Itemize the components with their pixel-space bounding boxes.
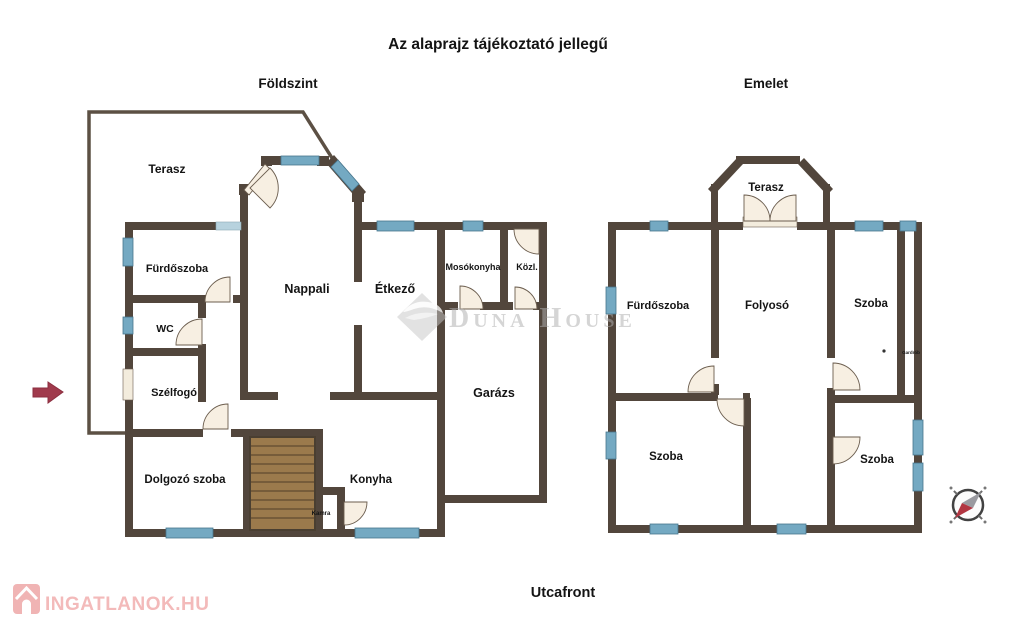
house-icon	[13, 584, 40, 614]
room-label-wc: WC	[156, 323, 174, 335]
window	[606, 432, 616, 459]
window	[355, 528, 419, 538]
room-label-furdoszoba: Fürdőszoba	[146, 263, 209, 275]
room-label-szoba-jobb-felso: Szoba	[854, 298, 888, 310]
door-arc	[203, 404, 228, 429]
ingatlanok-logo: INGATLANOK.HU	[6, 577, 216, 621]
upper-floor-plan	[606, 156, 923, 534]
room-label-kozlekedo: Közl.	[516, 262, 538, 272]
ground-floor-title: Földszint	[258, 76, 318, 91]
door-arc	[833, 437, 860, 464]
window	[331, 160, 359, 191]
door-arc	[176, 319, 202, 345]
door-arc	[744, 195, 770, 221]
street-front-label: Utcafront	[531, 585, 596, 601]
page-title: Az alaprajz tájékoztató jellegű	[388, 36, 608, 53]
window	[281, 156, 319, 165]
room-label-furdoszoba-emelet: Fürdőszoba	[627, 300, 690, 312]
ground-floor-room-labels: Terasz Fürdőszoba WC Szélfogó Nappali Ét…	[144, 162, 537, 517]
door-arc	[344, 502, 367, 525]
window	[216, 222, 241, 230]
window	[650, 524, 678, 534]
room-label-etkezo: Étkező	[375, 281, 416, 296]
door-arc	[770, 195, 796, 221]
window	[123, 238, 133, 266]
ingatlanok-watermark-text: INGATLANOK.HU	[45, 594, 209, 615]
door-arc	[514, 229, 539, 254]
room-label-terasz-emelet: Terasz	[748, 182, 784, 194]
duna-house-watermark-text: Duna House	[449, 303, 636, 334]
room-label-mosokonyha: Mosókonyha	[445, 262, 501, 272]
door-arc	[688, 366, 714, 392]
wardrobe-dot	[882, 349, 885, 352]
door-arc	[250, 168, 278, 208]
entrance-arrow-icon	[33, 382, 63, 403]
door-arc	[833, 363, 860, 390]
room-label-terasz: Terasz	[148, 162, 185, 176]
window	[650, 221, 668, 231]
window	[166, 528, 213, 538]
window	[855, 221, 883, 231]
upper-floor-windows	[606, 221, 923, 534]
window	[777, 524, 806, 534]
room-label-kamra: Kamra	[312, 511, 331, 517]
room-label-dolgozo-szoba: Dolgozó szoba	[144, 474, 226, 486]
room-label-nappali: Nappali	[284, 282, 329, 296]
upper-floor-title: Emelet	[744, 76, 789, 91]
window	[900, 221, 916, 231]
room-label-garazs: Garázs	[473, 386, 515, 400]
window	[913, 420, 923, 455]
room-label-folyoso: Folyosó	[745, 300, 789, 312]
room-label-szelfogo: Szélfogó	[151, 387, 197, 399]
room-label-szoba-bal-also: Szoba	[649, 451, 683, 463]
floorplan-drawing: Duna House INGATLANOK.HU Az alaprajz táj…	[0, 0, 1024, 625]
room-label-gardrob: Gardrób	[902, 350, 920, 355]
room-label-konyha: Konyha	[350, 474, 393, 486]
floorplan-page: Duna House INGATLANOK.HU Az alaprajz táj…	[0, 0, 1024, 625]
window	[913, 463, 923, 491]
room-label-szoba-jobb-also: Szoba	[860, 454, 894, 466]
door-arc	[717, 399, 744, 426]
door-arc	[205, 277, 230, 302]
entrance-doorway	[123, 369, 133, 400]
window	[123, 317, 133, 334]
compass-icon	[950, 487, 987, 524]
window	[377, 221, 414, 231]
staircase	[250, 437, 315, 530]
window	[463, 221, 483, 231]
